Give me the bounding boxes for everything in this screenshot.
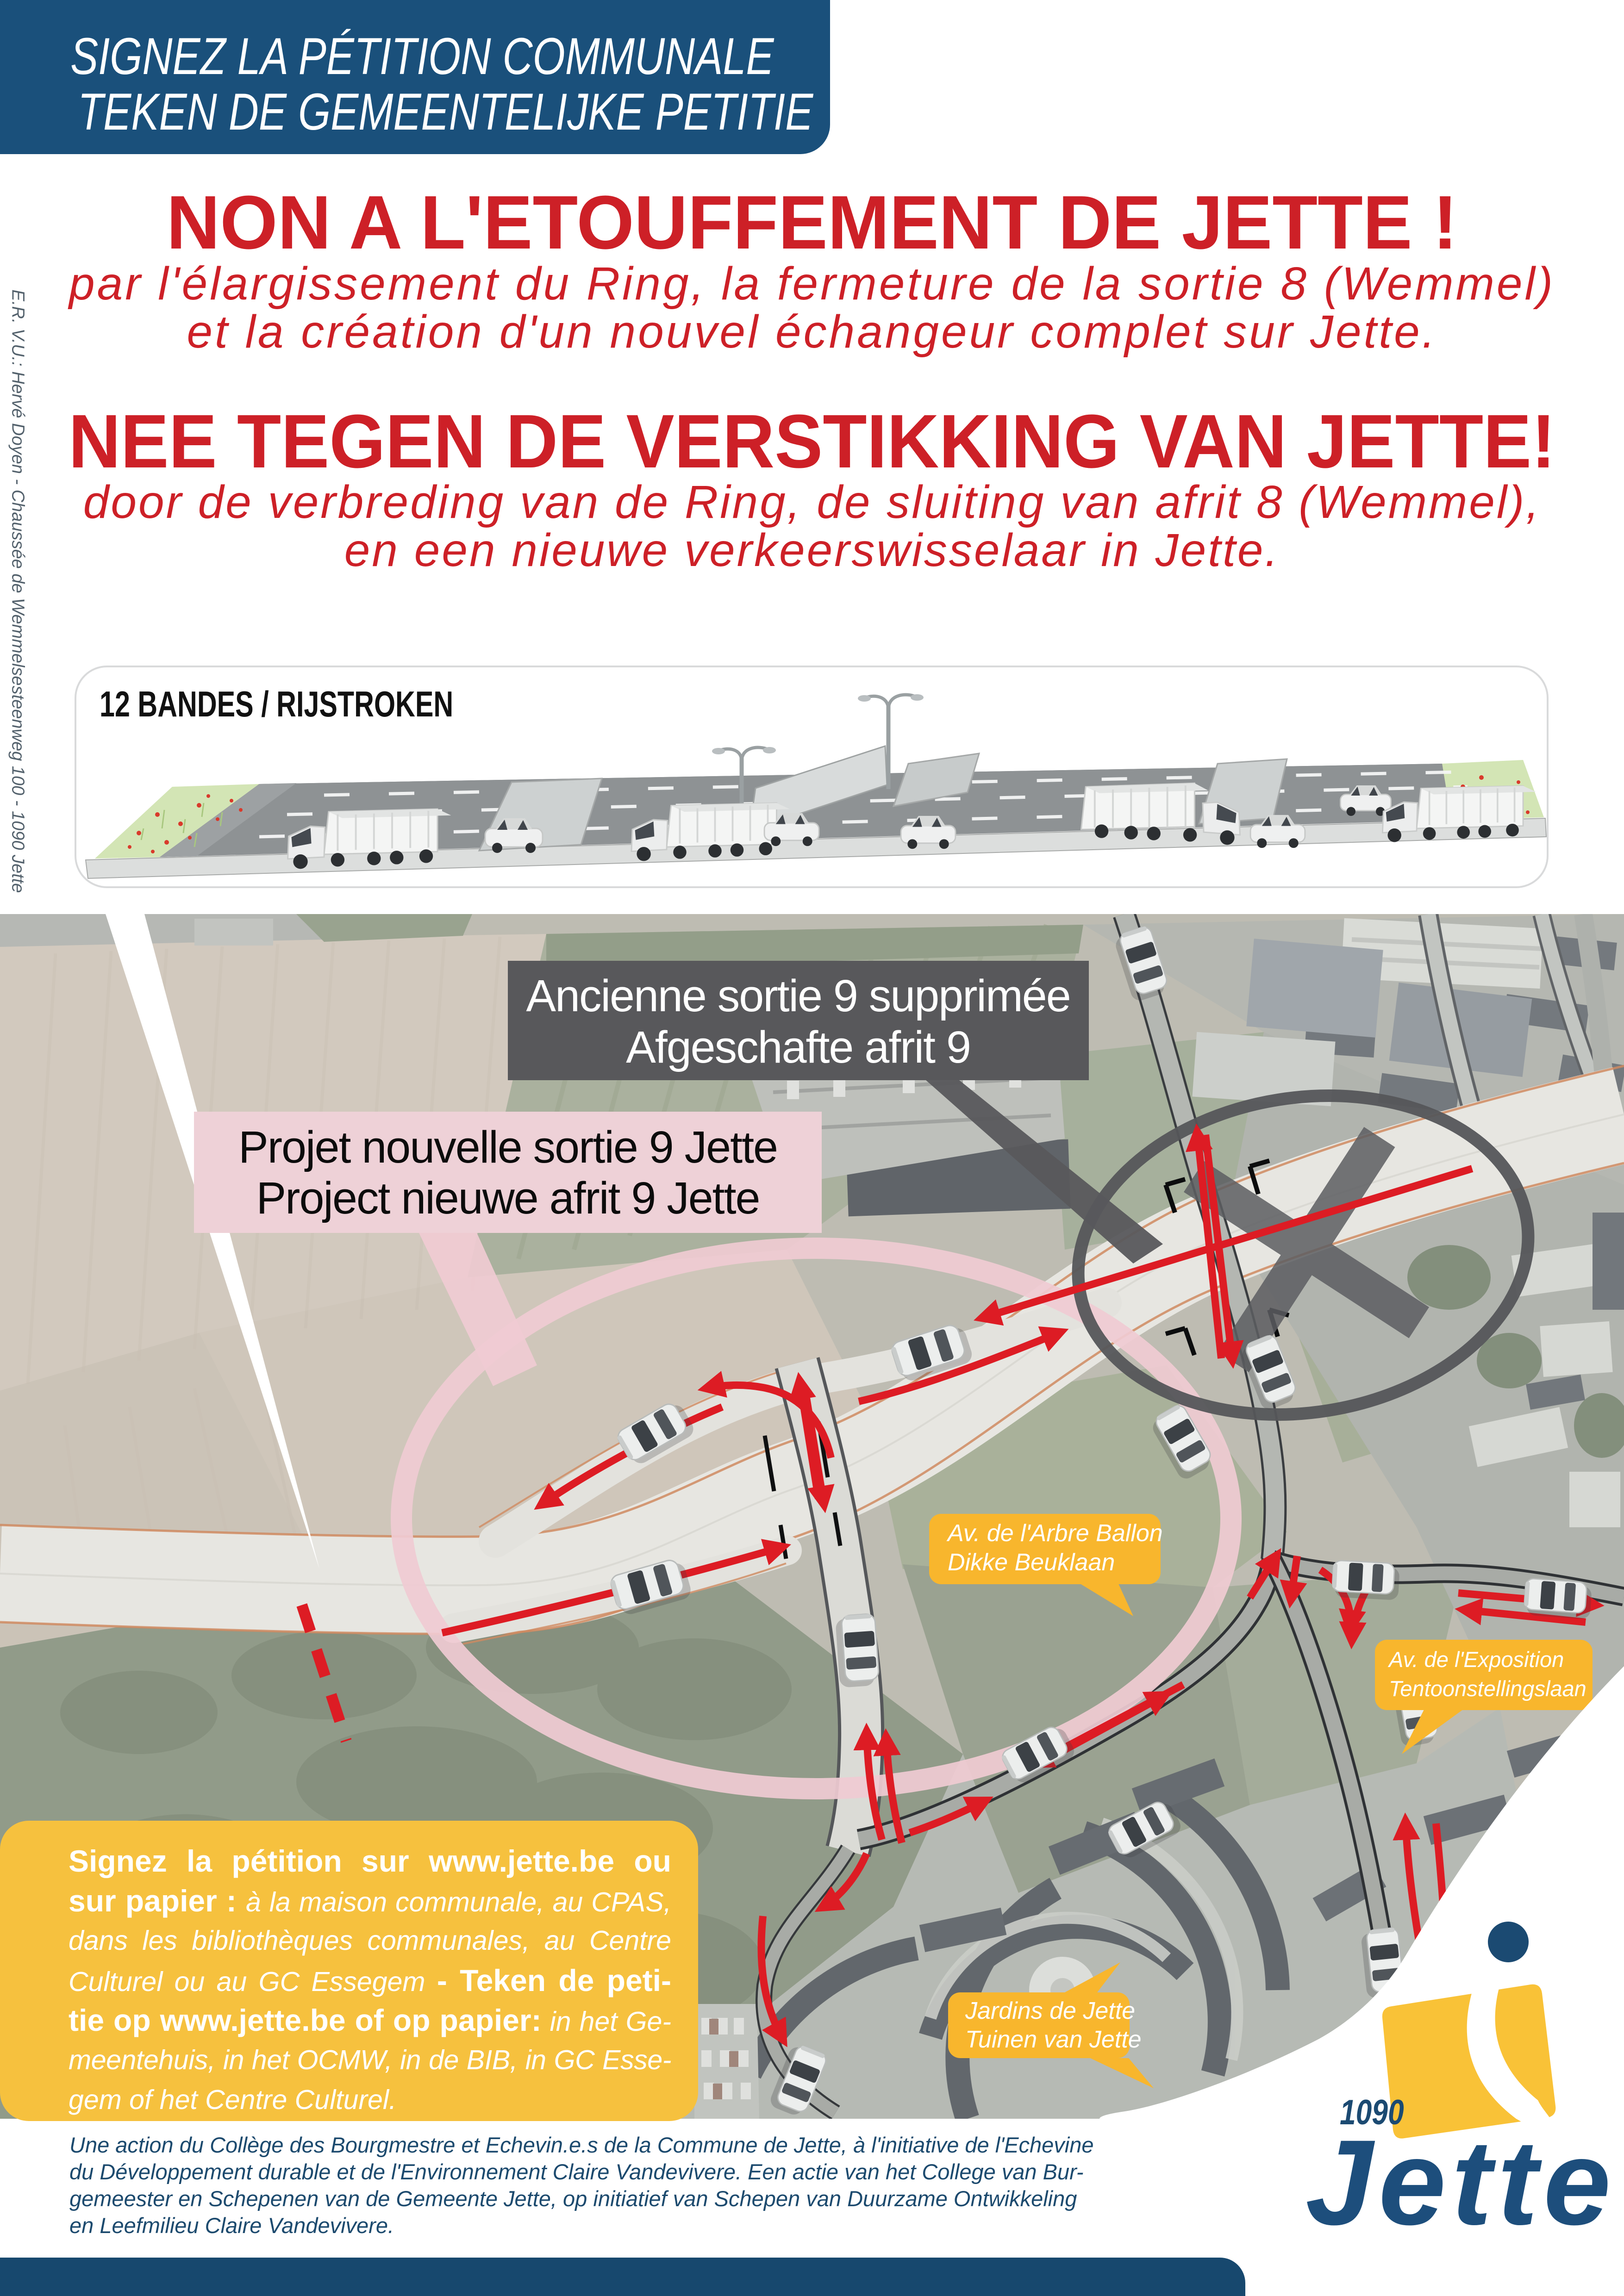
svg-text:Av. de l'Arbre Ballon: Av. de l'Arbre Ballon <box>946 1520 1163 1547</box>
svg-text:Dikke Beuklaan: Dikke Beuklaan <box>948 1549 1115 1576</box>
svg-text:Projet nouvelle sortie 9 Jette: Projet nouvelle sortie 9 Jette <box>238 1122 777 1172</box>
svg-text:Project nieuwe afrit 9 Jette: Project nieuwe afrit 9 Jette <box>256 1173 759 1223</box>
svg-text:Jardins de Jette: Jardins de Jette <box>965 1997 1135 2024</box>
svg-text:Ancienne sortie 9 supprimée: Ancienne sortie 9 supprimée <box>526 971 1070 1021</box>
svg-text:Jette: Jette <box>1305 2115 1617 2250</box>
svg-text:Av. de l'Exposition: Av. de l'Exposition <box>1387 1647 1564 1672</box>
svg-text:Tentoonstellingslaan: Tentoonstellingslaan <box>1389 1676 1587 1701</box>
svg-text:Tuinen van Jette: Tuinen van Jette <box>965 2026 1142 2053</box>
svg-text:Afgeschafte afrit 9: Afgeschafte afrit 9 <box>626 1022 970 1072</box>
